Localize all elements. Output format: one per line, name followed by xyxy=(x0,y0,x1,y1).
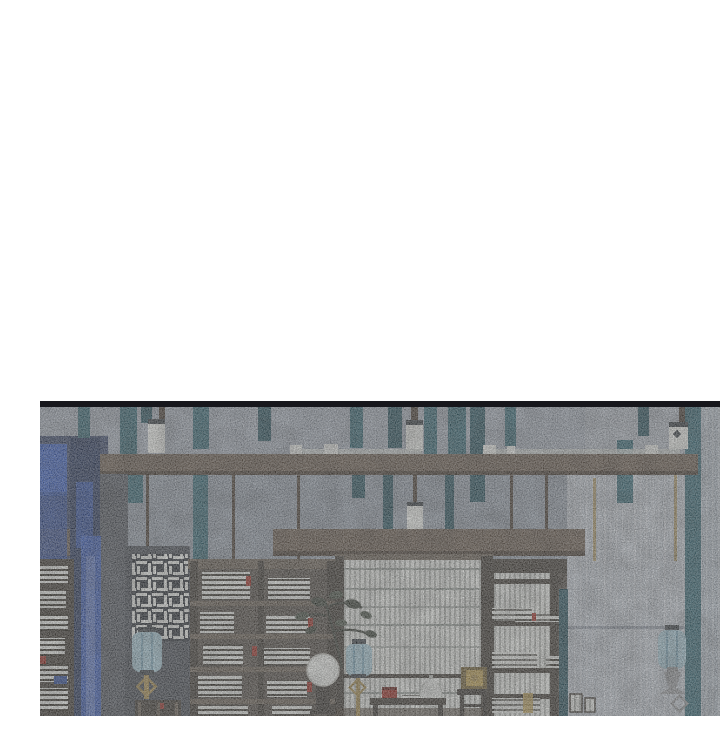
webtoon-panel: webtoon-panel-illustration xyxy=(40,16,720,716)
panel-divider-rule xyxy=(40,401,720,407)
scene-illustration: webtoon-panel-illustration xyxy=(40,16,720,716)
blank-top-area xyxy=(40,16,720,402)
film-grain xyxy=(40,407,720,716)
